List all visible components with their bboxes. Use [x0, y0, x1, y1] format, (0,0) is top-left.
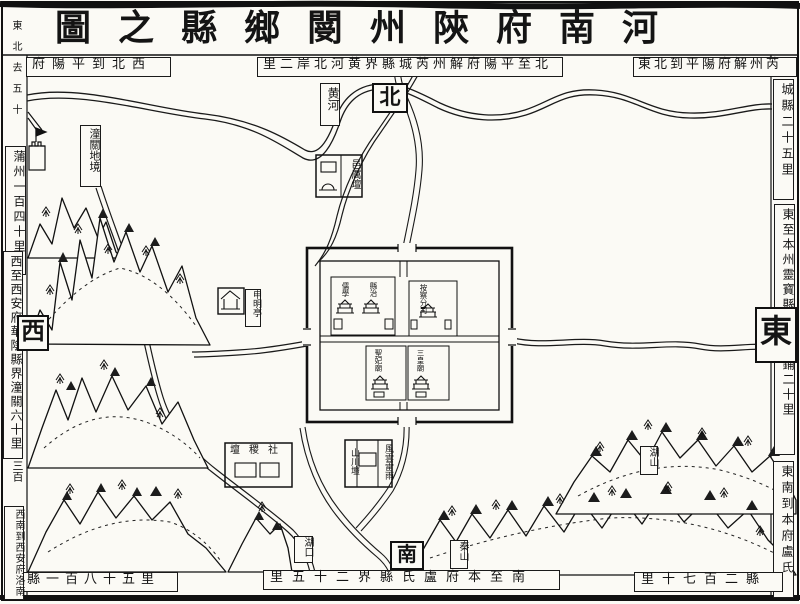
hu-mountain-label: 湖山: [640, 446, 658, 475]
fengyunleiyu-label: 風雲雷雨: [380, 444, 392, 486]
border-note-north: 里二岸北河黄界縣城芮州解府陽平至北: [257, 57, 563, 77]
shengfei-temple-label: 聖妃廟: [372, 349, 382, 375]
yellow-river-label: 黄河: [320, 83, 340, 126]
border-note-sw: 縣一百八十五里: [21, 572, 178, 592]
tongguan-fort-icon: [28, 112, 46, 170]
south-marker: 南: [390, 541, 424, 570]
border-note-se: 里十七百二縣: [634, 572, 783, 592]
border-note-right-upper: 城縣二十五里: [773, 79, 794, 200]
shenming-pavilion-label: 申明亭: [245, 289, 261, 327]
map-title: 圖之縣鄉閿州陝府南河: [55, 10, 745, 46]
border-note-south: 里五十二界縣氏盧府本至南: [263, 570, 560, 590]
confucian-school-label: 儒學: [339, 282, 349, 300]
county-yamen-label: 縣治: [367, 282, 377, 300]
city-buildings: [334, 300, 451, 397]
border-note-nw: 府陽平到北西: [26, 57, 171, 77]
sheji-altar-label: 壇稷社: [230, 446, 288, 458]
sanhuang-temple-label: 三皇廟: [414, 349, 424, 375]
hukou-label: 湖口: [294, 536, 313, 563]
border-note-west: 西至西安府華陰縣界潼關六十里: [3, 251, 23, 459]
city-walls: [302, 243, 517, 427]
shenming-pavilion-icon: [218, 288, 244, 314]
east-river: [192, 338, 771, 357]
qin-mountain-label: 秦山: [450, 540, 468, 569]
north-marker: 北: [372, 83, 408, 113]
east-marker: 東: [755, 307, 797, 363]
yi-li-altar-label: 邑厲壇: [344, 159, 359, 195]
antique-county-map: 圖之縣鄉閿州陝府南河 東北去五十 府陽平到北西 蒲州一百四十里 里二岸北河黄界縣…: [0, 0, 800, 604]
west-marker: 西: [17, 315, 49, 351]
shanchuan-altar-label: 山川壇: [347, 448, 358, 482]
border-note-ne: 東北到平陽府解州芮: [633, 57, 797, 77]
corner-note: 東北去五十: [3, 20, 20, 152]
surveillance-branch-label: 按察分司: [417, 284, 427, 317]
border-note-left-small: 三百: [7, 460, 23, 494]
border-note-left-lower: 西南到西安府洛南: [4, 506, 24, 600]
tongguan-label: 潼關地境: [80, 125, 101, 187]
